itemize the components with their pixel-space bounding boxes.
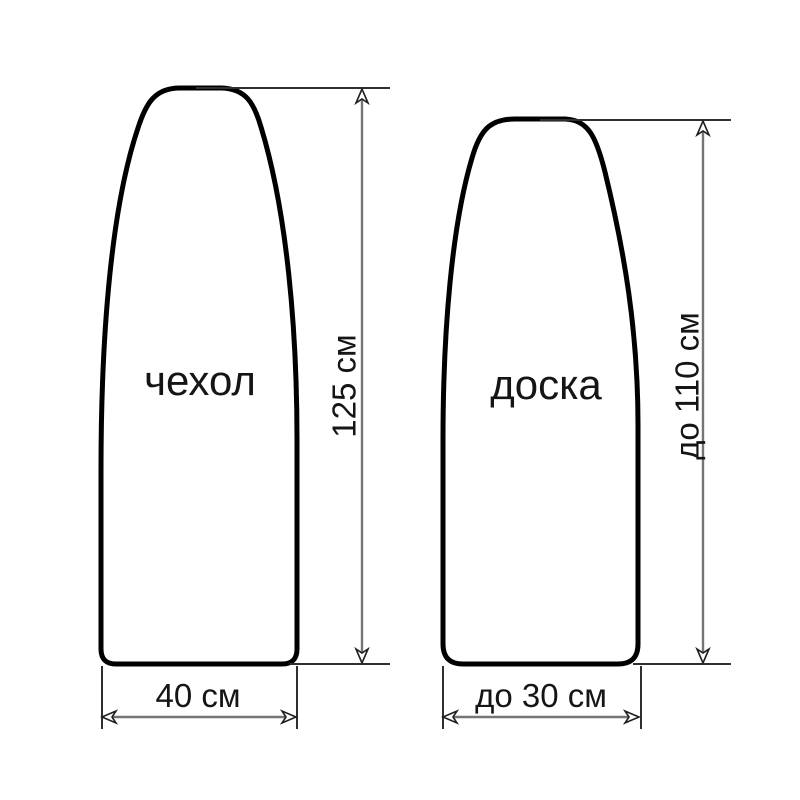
board-width-dimension: до 30 см: [443, 666, 641, 729]
cover-width-dimension: 40 см: [102, 666, 297, 729]
board-height-label: до 110 см: [669, 312, 706, 460]
board-figure: доска: [443, 119, 638, 664]
board-width-label: до 30 см: [475, 677, 607, 714]
cover-figure: чехол: [101, 88, 297, 664]
cover-height-label: 125 см: [326, 334, 363, 437]
diagram-canvas: чехол 125 см 40 см доска: [0, 0, 800, 800]
cover-width-label: 40 см: [155, 677, 240, 714]
cover-label: чехол: [144, 357, 256, 404]
board-label: доска: [490, 361, 602, 408]
ironing-board-dimension-diagram: чехол 125 см 40 см доска: [0, 0, 800, 800]
